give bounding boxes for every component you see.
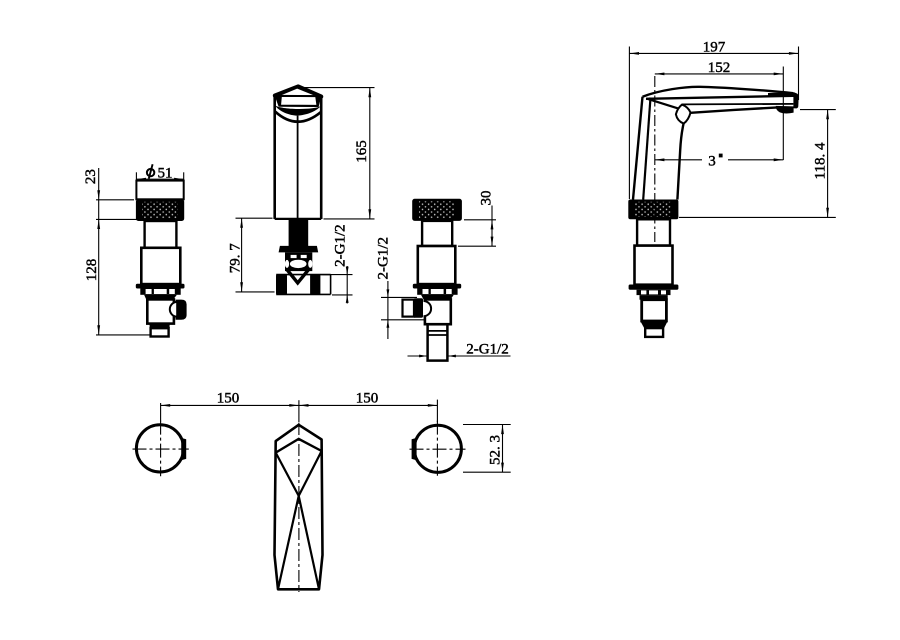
svg-text:118. 4: 118. 4 [812,142,828,179]
svg-text:79. 7: 79. 7 [228,243,244,274]
svg-text:150: 150 [356,390,379,406]
svg-text:128: 128 [84,259,100,282]
svg-text:2-G1/2: 2-G1/2 [332,224,348,267]
svg-text:52. 3: 52. 3 [488,435,504,465]
svg-text:150: 150 [217,390,240,406]
svg-text:3: 3 [708,153,716,169]
svg-text:30: 30 [479,191,495,206]
svg-text:2-G1/2: 2-G1/2 [466,341,509,357]
svg-text:152: 152 [708,60,731,76]
svg-text:165: 165 [354,140,370,163]
svg-text:2-G1/2: 2-G1/2 [376,237,392,280]
svg-text:23: 23 [83,169,99,184]
svg-text:197: 197 [703,39,726,55]
svg-text:51: 51 [158,165,173,181]
